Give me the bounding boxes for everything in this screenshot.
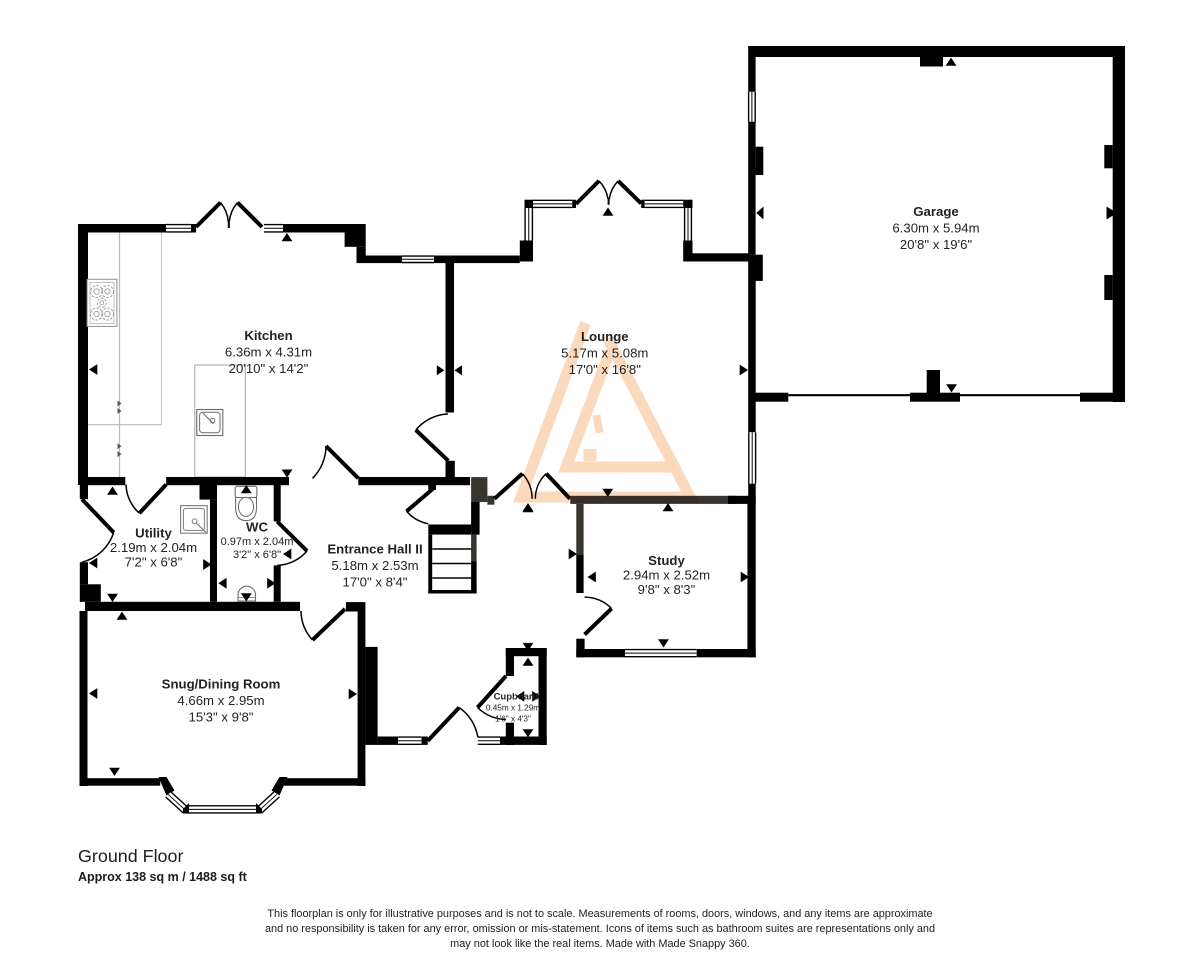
- svg-text:Study: Study: [648, 553, 685, 568]
- svg-text:0.45m x 1.29m: 0.45m x 1.29m: [486, 704, 540, 713]
- svg-text:Entrance Hall II: Entrance Hall II: [327, 542, 422, 557]
- svg-text:7'2" x 6'8": 7'2" x 6'8": [125, 555, 183, 570]
- svg-text:Garage: Garage: [913, 204, 958, 219]
- svg-text:Snug/Dining Room: Snug/Dining Room: [162, 677, 281, 692]
- svg-text:6.36m x 4.31m: 6.36m x 4.31m: [225, 345, 312, 360]
- svg-text:4.66m x 2.95m: 4.66m x 2.95m: [177, 693, 264, 708]
- svg-text:6.30m x 5.94m: 6.30m x 5.94m: [892, 221, 979, 236]
- svg-text:may not look like the real ite: may not look like the real items. Made w…: [450, 938, 750, 950]
- svg-text:1'6" x 4'3": 1'6" x 4'3": [495, 715, 531, 724]
- svg-text:Approx 138 sq m / 1488 sq ft: Approx 138 sq m / 1488 sq ft: [78, 870, 248, 884]
- svg-text:0.97m x 2.04m: 0.97m x 2.04m: [221, 536, 294, 548]
- svg-text:Utility: Utility: [135, 526, 172, 541]
- svg-text:17'0" x 8'4": 17'0" x 8'4": [343, 575, 408, 590]
- svg-text:20'10" x 14'2": 20'10" x 14'2": [229, 361, 309, 376]
- svg-text:5.18m x 2.53m: 5.18m x 2.53m: [331, 558, 418, 573]
- svg-text:WC: WC: [246, 520, 268, 535]
- svg-text:9'8" x 8'3": 9'8" x 8'3": [638, 582, 696, 597]
- svg-text:Kitchen: Kitchen: [244, 328, 292, 343]
- svg-text:20'8" x 19'6": 20'8" x 19'6": [900, 237, 973, 252]
- svg-text:Ground Floor: Ground Floor: [78, 846, 183, 866]
- svg-text:and no responsibility is taken: and no responsibility is taken for any e…: [265, 923, 935, 935]
- svg-text:2.19m x 2.04m: 2.19m x 2.04m: [110, 540, 197, 555]
- svg-text:This floorplan is only for ill: This floorplan is only for illustrative …: [267, 908, 932, 920]
- svg-text:Cupboard: Cupboard: [494, 692, 539, 703]
- svg-text:3'2" x 6'8": 3'2" x 6'8": [233, 549, 281, 561]
- svg-text:15'3" x 9'8": 15'3" x 9'8": [189, 710, 254, 725]
- svg-text:2.94m x 2.52m: 2.94m x 2.52m: [623, 568, 710, 583]
